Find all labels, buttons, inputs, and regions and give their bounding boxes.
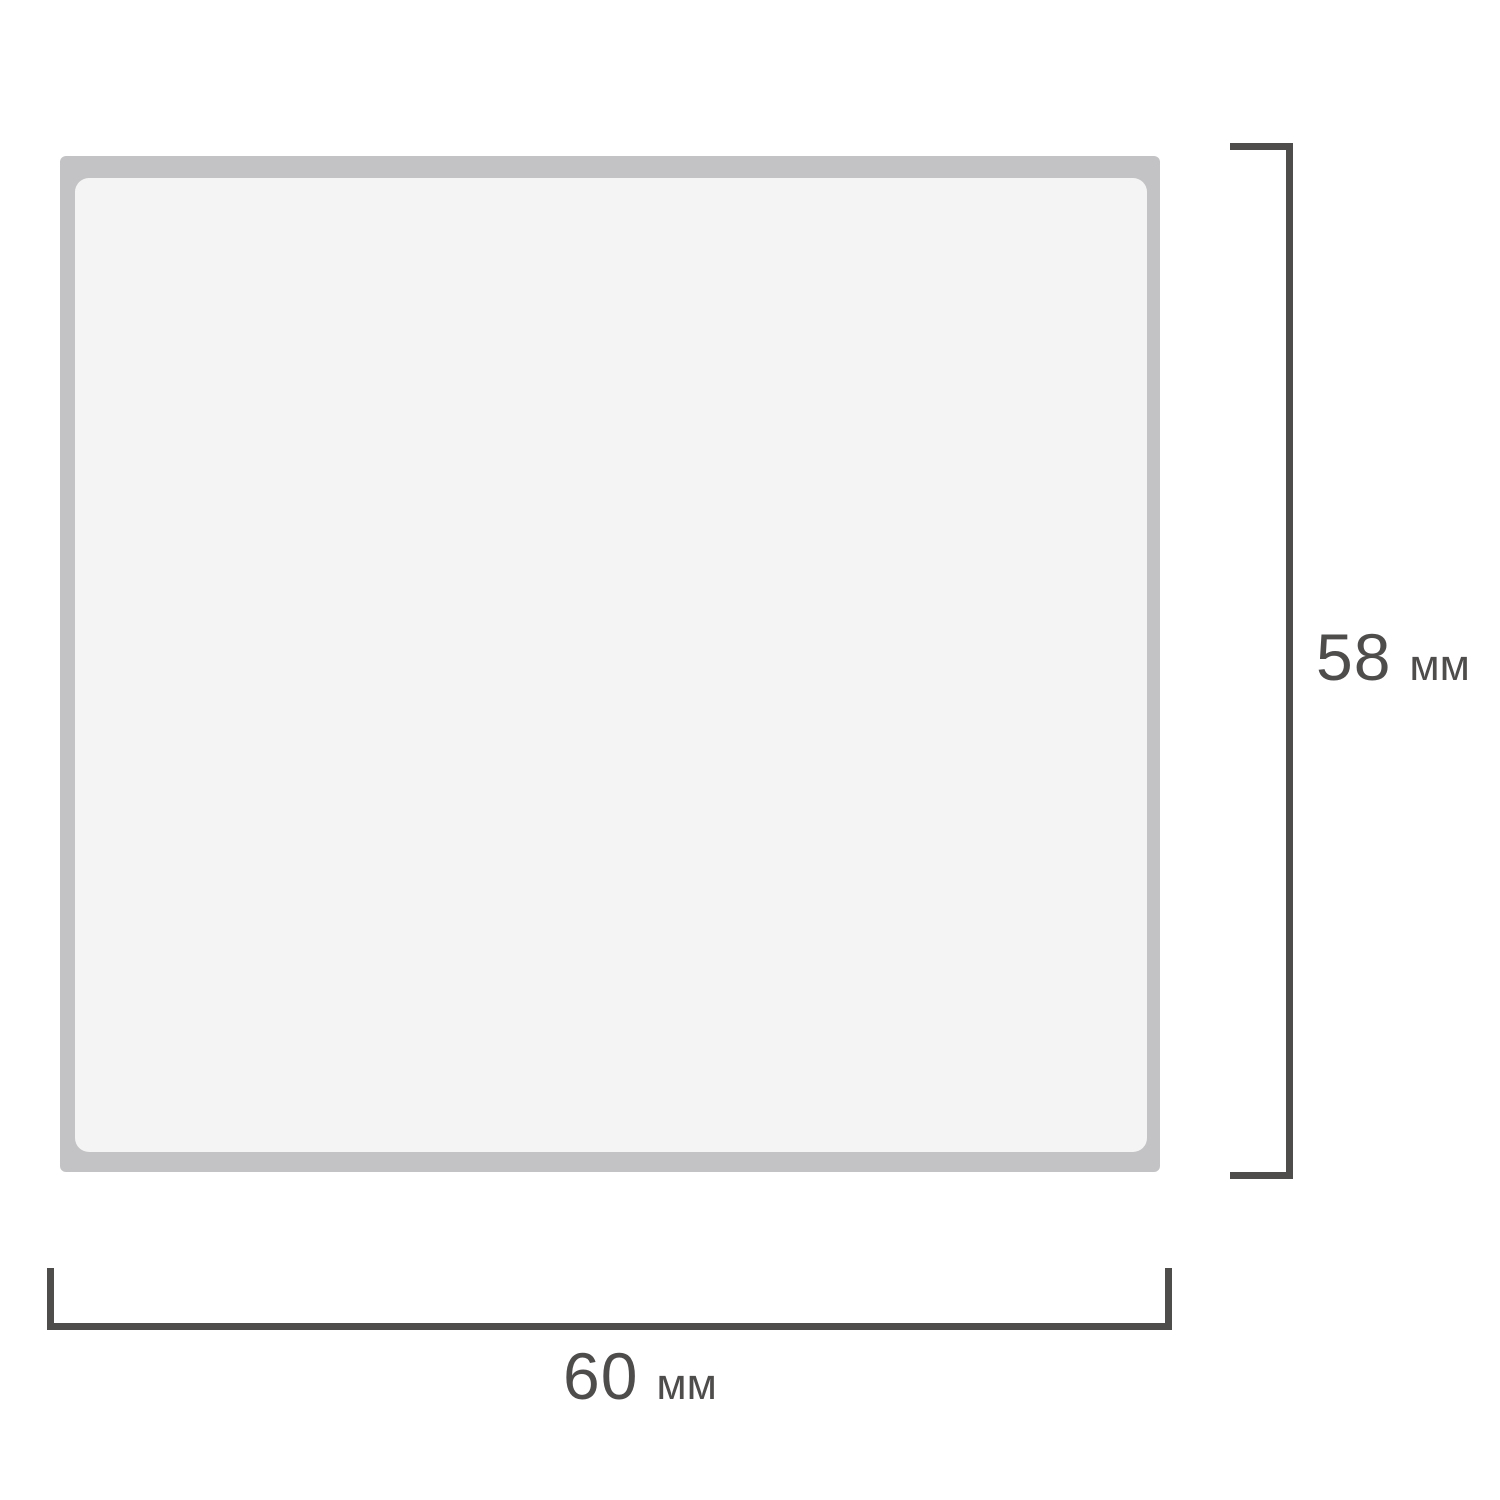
height-dimension-label: 58 мм	[1316, 624, 1470, 690]
width-unit: мм	[656, 1363, 717, 1407]
dimension-drawing: 58 мм 60 мм	[0, 0, 1500, 1500]
note-block-outline	[60, 156, 1160, 1172]
height-dimension-bracket	[1230, 143, 1293, 1179]
width-dimension-bracket	[47, 1268, 1172, 1330]
height-value: 58	[1316, 624, 1391, 690]
height-unit: мм	[1409, 644, 1470, 688]
width-dimension-label: 60 мм	[563, 1343, 717, 1409]
width-value: 60	[563, 1343, 638, 1409]
note-block-face	[75, 178, 1147, 1152]
